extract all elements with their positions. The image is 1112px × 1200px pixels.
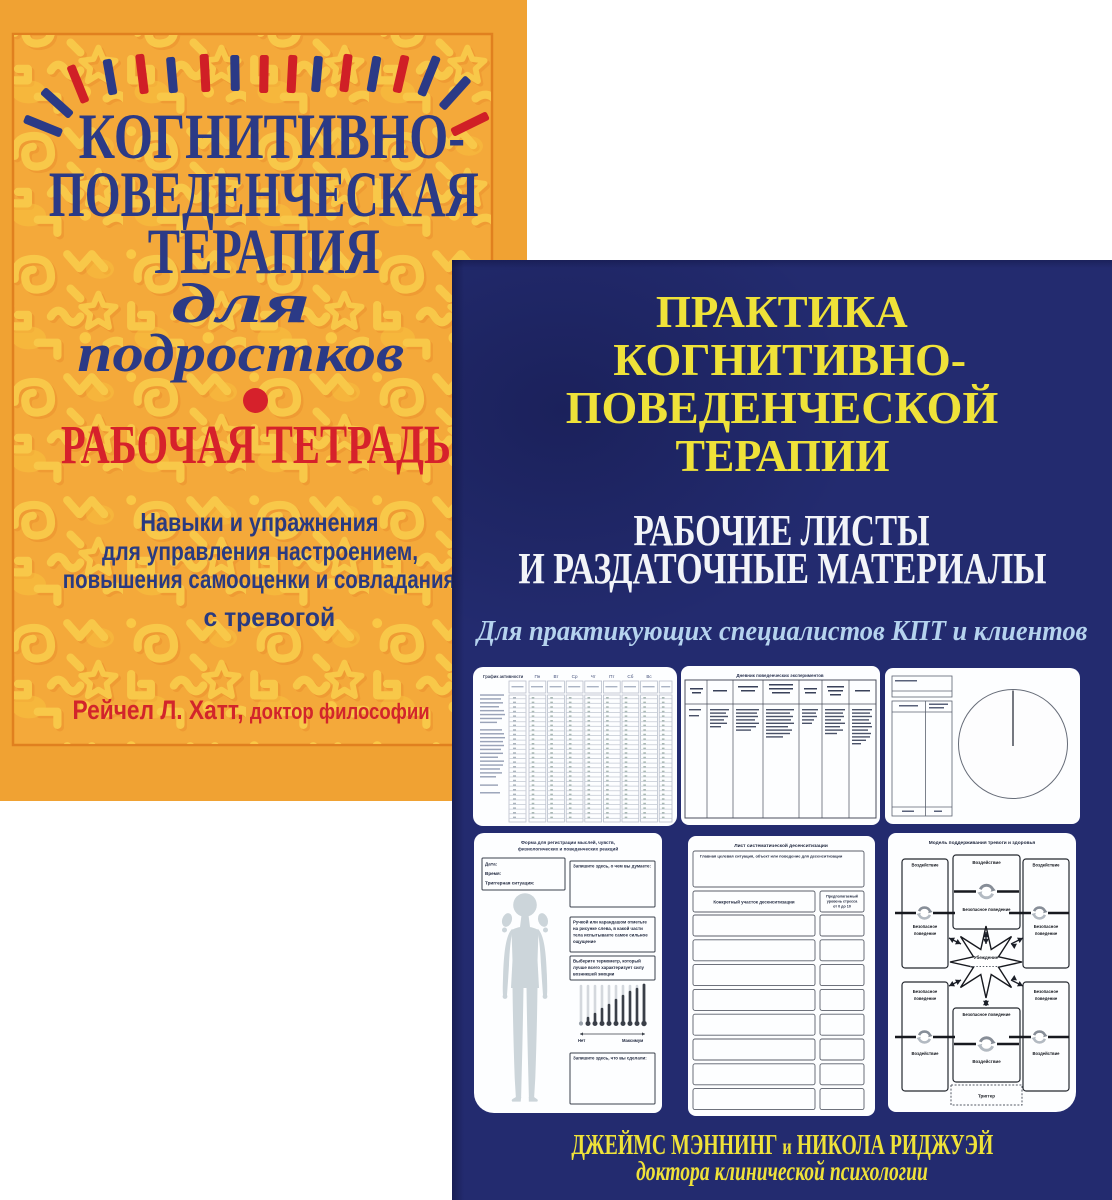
svg-text:Безопасное: Безопасное: [1034, 989, 1059, 994]
svg-text:Безопасное: Безопасное: [913, 924, 938, 929]
svg-text:поведение: поведение: [1035, 931, 1058, 936]
svg-text:на рисунке слева, в какой част: на рисунке слева, в какой части: [573, 926, 643, 931]
svg-text:Безопасное: Безопасное: [1034, 924, 1059, 929]
svg-text:Время:: Время:: [485, 871, 502, 876]
svg-text:Ручкой или карандашом отметьте: Ручкой или карандашом отметьте: [573, 920, 647, 925]
svg-text:лучше всего характеризует силу: лучше всего характеризует силу: [573, 965, 644, 970]
svg-text:Безопасное поведение: Безопасное поведение: [963, 1012, 1012, 1017]
svg-text:Модель поддерживания тревоги и: Модель поддерживания тревоги и здоровья: [929, 840, 1036, 846]
svg-text:от 0 до 10: от 0 до 10: [833, 905, 851, 909]
svg-text:возникшей эмоции: возникшей эмоции: [573, 972, 615, 977]
svg-text:Форма для регистрации мыслей,: Форма для регистрации мыслей, чувств,: [521, 839, 615, 845]
svg-text:Триггерная ситуация:: Триггерная ситуация:: [485, 881, 535, 886]
svg-text:Выберите термометр, который: Выберите термометр, который: [573, 959, 641, 964]
svg-text:Воздействие: Воздействие: [911, 1051, 939, 1056]
svg-text:Дневник поведенческих эксперим: Дневник поведенческих экспериментов: [736, 673, 824, 678]
svg-text:Воздействие: Воздействие: [1032, 863, 1060, 868]
svg-text:Нет: Нет: [578, 1038, 585, 1043]
svg-text:Дата:: Дата:: [485, 862, 498, 867]
svg-text:Главная целевая ситуация, объе: Главная целевая ситуация, объект или пов…: [700, 854, 843, 859]
svg-text:поведение: поведение: [1035, 996, 1058, 1001]
svg-text:Максимум: Максимум: [622, 1038, 643, 1043]
svg-text:уровень стресса: уровень стресса: [827, 900, 859, 904]
svg-text:физиологических и поведенчески: физиологических и поведенческих реакций: [518, 846, 618, 852]
svg-text:Запишите здесь, о чем вы думае: Запишите здесь, о чем вы думаете:: [573, 864, 651, 869]
svg-text:поведение: поведение: [914, 931, 937, 936]
svg-text:Убеждение: Убеждение: [974, 954, 999, 960]
svg-text:Воздействие: Воздействие: [911, 863, 939, 868]
svg-text:поведение: поведение: [914, 996, 937, 1001]
svg-text:Конкретный участок десенситиза: Конкретный участок десенситизации: [713, 900, 794, 905]
svg-text:Воздействие: Воздействие: [972, 860, 1001, 865]
svg-text:Запишите здесь, что вы сделали: Запишите здесь, что вы сделали:: [573, 1056, 647, 1061]
svg-text:Предполагаемый: Предполагаемый: [826, 895, 859, 899]
svg-text:ощущение: ощущение: [573, 939, 596, 944]
svg-text:Триггер: Триггер: [978, 1094, 995, 1099]
svg-text:Воздействие: Воздействие: [972, 1059, 1001, 1064]
svg-text:Воздействие: Воздействие: [1032, 1051, 1060, 1056]
svg-text:Безопасное: Безопасное: [913, 989, 938, 994]
svg-text:тела испытываете самое сильное: тела испытываете самое сильное: [573, 933, 648, 938]
svg-text:Лист систематической десенсити: Лист систематической десенситизации: [734, 842, 828, 849]
svg-text:Безопасное поведение: Безопасное поведение: [963, 907, 1012, 912]
